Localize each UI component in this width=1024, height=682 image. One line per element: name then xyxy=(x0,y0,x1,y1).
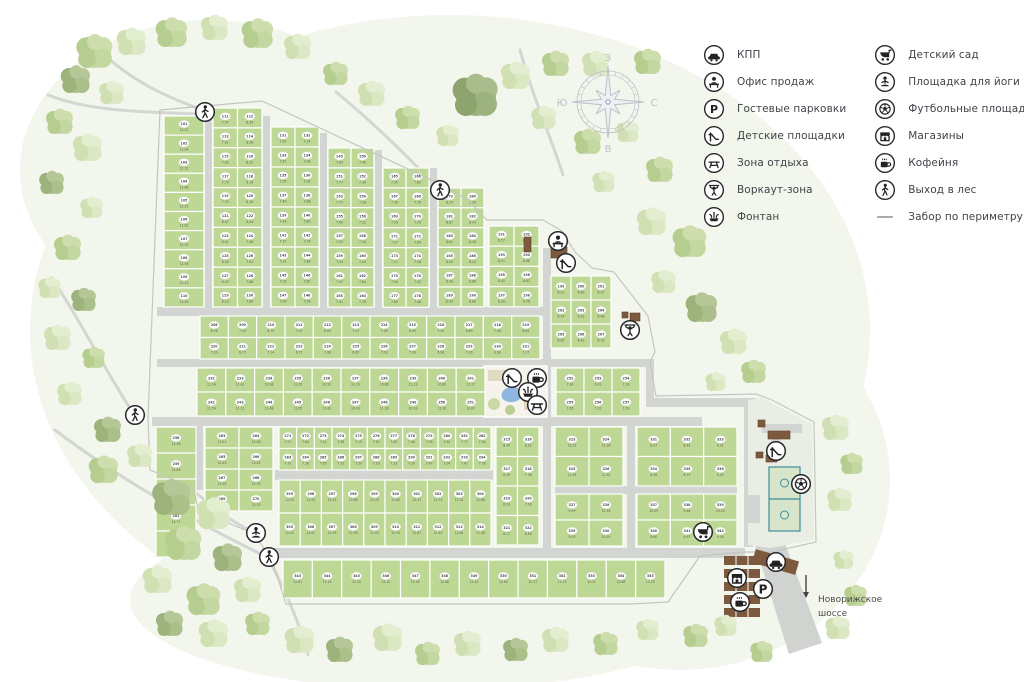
plot[interactable]: 300 12.80 xyxy=(385,480,406,513)
svg-text:7.64: 7.64 xyxy=(414,240,421,244)
plot[interactable]: 320 7.90 xyxy=(518,486,540,516)
plot[interactable]: 140 7.80 xyxy=(295,207,319,227)
plot[interactable]: 112 8.34 xyxy=(238,108,263,128)
plot[interactable]: 332 8.44 xyxy=(670,427,703,457)
plot[interactable]: 222 7.14 xyxy=(257,338,285,360)
svg-text:354: 354 xyxy=(617,574,625,578)
plot[interactable]: 339 10.03 xyxy=(704,494,737,520)
plot[interactable]: 271 7.27 xyxy=(279,427,297,449)
plot[interactable]: 105 12.25 xyxy=(164,192,204,211)
svg-text:7.80: 7.80 xyxy=(304,220,311,224)
svg-text:7.14: 7.14 xyxy=(267,351,274,355)
plot[interactable]: 244 11.48 xyxy=(255,392,284,416)
tree xyxy=(634,49,661,74)
plot[interactable]: 258 14.46 xyxy=(156,427,196,453)
plot[interactable]: 220 7.20 xyxy=(200,338,228,360)
plot[interactable]: 268 13.76 xyxy=(239,469,273,490)
plot[interactable]: 156 7.22 xyxy=(351,208,374,228)
parking-icon: P xyxy=(754,580,773,599)
plot[interactable]: 318 7.96 xyxy=(518,457,540,487)
plot[interactable]: 171 7.27 xyxy=(383,228,406,248)
plot[interactable]: 106 11.82 xyxy=(164,212,204,231)
plot[interactable]: 276 7.52 xyxy=(367,427,385,449)
svg-text:286: 286 xyxy=(337,456,345,460)
plot[interactable]: 235 11.35 xyxy=(283,368,312,392)
plot[interactable]: 215 6.95 xyxy=(398,316,426,338)
svg-text:258: 258 xyxy=(173,436,181,440)
plot[interactable]: 143 7.31 xyxy=(271,247,295,267)
svg-text:282: 282 xyxy=(479,434,486,438)
plot[interactable]: 226 7.02 xyxy=(370,338,398,360)
plot[interactable]: 264 13.08 xyxy=(239,427,273,448)
svg-text:12.31: 12.31 xyxy=(455,498,464,502)
plot[interactable]: 329 9.93 xyxy=(555,520,589,546)
plot[interactable]: 338 9.66 xyxy=(670,494,703,520)
tree xyxy=(156,17,187,47)
plot[interactable]: 331 8.07 xyxy=(637,427,670,457)
plot[interactable]: 349 12.43 xyxy=(459,560,488,598)
plot[interactable]: 138 7.86 xyxy=(295,187,319,207)
plot[interactable]: 280 7.40 xyxy=(438,427,456,449)
plot[interactable]: 136 7.92 xyxy=(295,167,319,187)
plot[interactable]: 208 6.76 xyxy=(200,316,228,338)
plot[interactable]: 213 7.01 xyxy=(342,316,370,338)
svg-text:231: 231 xyxy=(522,345,530,349)
plot[interactable]: 247 10.99 xyxy=(341,392,370,416)
plot[interactable]: 104 11.88 xyxy=(164,173,204,192)
svg-text:7.28: 7.28 xyxy=(623,382,630,386)
plot[interactable]: 203 6.91 xyxy=(571,300,591,324)
plot[interactable]: 327 9.99 xyxy=(555,494,589,520)
plot[interactable]: 145 7.25 xyxy=(271,267,295,287)
plot[interactable]: 317 8.39 xyxy=(496,457,518,487)
svg-text:8.38: 8.38 xyxy=(650,473,657,477)
plot[interactable]: 210 6.70 xyxy=(257,316,285,338)
svg-text:7.77: 7.77 xyxy=(336,180,343,184)
plot[interactable]: 163 7.41 xyxy=(328,287,351,307)
plot[interactable]: 239 11.23 xyxy=(399,368,428,392)
plot[interactable]: 229 7.33 xyxy=(455,338,483,360)
plot[interactable]: 319 8.33 xyxy=(496,486,518,516)
plot[interactable]: 251 10.87 xyxy=(456,392,485,416)
plot[interactable]: 216 7.32 xyxy=(427,316,455,338)
plot[interactable]: 114 8.28 xyxy=(238,128,263,148)
plot[interactable]: 197 8.39 xyxy=(489,287,514,307)
svg-text:7.61: 7.61 xyxy=(280,160,287,164)
plot[interactable]: 120 8.10 xyxy=(238,188,263,208)
plot[interactable]: 286 7.22 xyxy=(332,449,350,471)
plot[interactable]: 183 8.61 xyxy=(438,228,461,248)
plot[interactable]: 313 12.81 xyxy=(449,513,470,546)
plot[interactable]: 153 7.71 xyxy=(328,188,351,208)
slide-icon xyxy=(503,369,522,388)
plot[interactable]: 274 7.58 xyxy=(332,427,350,449)
plot[interactable]: 206 6.42 xyxy=(571,324,591,348)
plot[interactable]: 325 11.95 xyxy=(555,457,589,487)
svg-text:7.53: 7.53 xyxy=(390,462,397,466)
svg-text:343: 343 xyxy=(294,574,302,578)
plot[interactable]: 340 9.60 xyxy=(637,520,670,546)
plot[interactable]: 234 10.98 xyxy=(255,368,284,392)
plot[interactable]: 170 7.70 xyxy=(406,208,429,228)
walk-icon xyxy=(874,179,896,201)
plot[interactable]: 295 12.55 xyxy=(279,480,300,513)
plot[interactable]: 181 8.67 xyxy=(438,208,461,228)
plot[interactable]: 230 6.90 xyxy=(483,338,511,360)
plot[interactable]: 350 12.80 xyxy=(489,560,518,598)
plot[interactable]: 164 7.78 xyxy=(351,287,374,307)
plot[interactable]: 306 12.62 xyxy=(300,513,321,546)
plot[interactable]: 284 7.28 xyxy=(297,449,315,471)
plot[interactable]: 311 12.87 xyxy=(406,513,427,546)
svg-text:12.86: 12.86 xyxy=(349,498,358,502)
svg-text:164: 164 xyxy=(359,294,367,298)
plot[interactable]: 335 8.75 xyxy=(670,457,703,487)
plot[interactable]: 321 8.27 xyxy=(496,516,518,546)
plot[interactable]: 173 7.21 xyxy=(383,248,406,268)
plot[interactable]: 201 6.97 xyxy=(591,276,611,300)
svg-text:7.26: 7.26 xyxy=(494,329,501,333)
plot[interactable]: 158 7.16 xyxy=(351,228,374,248)
plot[interactable]: 343 12.61 xyxy=(283,560,312,598)
plot[interactable]: 355 12.25 xyxy=(636,560,665,598)
plot[interactable]: 299 12.43 xyxy=(364,480,385,513)
plot[interactable]: 270 13.70 xyxy=(239,490,273,511)
plot[interactable]: 149 7.83 xyxy=(328,148,351,168)
plot[interactable]: 168 7.76 xyxy=(406,188,429,208)
plot[interactable]: 167 7.39 xyxy=(383,188,406,208)
plot[interactable]: 129 8.23 xyxy=(213,287,238,307)
plot[interactable]: 119 7.73 xyxy=(213,188,238,208)
plot[interactable]: 128 7.86 xyxy=(238,267,263,287)
plot[interactable]: 354 12.68 xyxy=(606,560,635,598)
plot[interactable]: 107 12.19 xyxy=(164,231,204,250)
plot[interactable]: 110 12.50 xyxy=(164,288,204,307)
plot[interactable]: 193 8.51 xyxy=(489,246,514,266)
plot[interactable]: 336 8.32 xyxy=(704,457,737,487)
plot[interactable]: 297 12.49 xyxy=(321,480,342,513)
plot[interactable]: 176 7.52 xyxy=(406,268,429,288)
plot[interactable]: 155 7.65 xyxy=(328,208,351,228)
svg-text:10.98: 10.98 xyxy=(265,382,274,386)
svg-text:12.25: 12.25 xyxy=(180,205,189,209)
plot[interactable]: 212 6.64 xyxy=(313,316,341,338)
plot[interactable]: 236 10.92 xyxy=(312,368,341,392)
plot[interactable]: 305 12.25 xyxy=(279,513,300,546)
tree xyxy=(750,641,773,662)
plot[interactable]: 344 12.18 xyxy=(312,560,341,598)
svg-text:12.62: 12.62 xyxy=(306,531,315,535)
plot[interactable]: 200 6.60 xyxy=(571,276,591,300)
svg-text:108: 108 xyxy=(181,256,189,260)
plot[interactable]: 196 8.82 xyxy=(514,266,539,286)
plot[interactable]: 113 7.91 xyxy=(213,128,238,148)
plot[interactable]: 188 8.86 xyxy=(461,267,484,287)
plot[interactable]: 144 7.68 xyxy=(295,247,319,267)
svg-text:107: 107 xyxy=(181,237,189,241)
plot[interactable]: 294 7.78 xyxy=(473,449,491,471)
plot[interactable]: 315 8.45 xyxy=(496,427,518,457)
plot[interactable]: 243 11.11 xyxy=(226,392,255,416)
tree xyxy=(245,612,270,635)
svg-text:8.33: 8.33 xyxy=(503,503,510,507)
plot[interactable]: 219 6.83 xyxy=(512,316,540,338)
legend-label: Детский сад xyxy=(908,49,978,61)
plot[interactable]: 118 8.16 xyxy=(238,168,263,188)
plot[interactable]: 124 7.98 xyxy=(238,227,263,247)
plot[interactable]: 275 7.15 xyxy=(350,427,368,449)
plot[interactable]: 221 6.77 xyxy=(228,338,256,360)
plot[interactable]: 223 6.71 xyxy=(285,338,313,360)
plot[interactable]: 334 8.38 xyxy=(637,457,670,487)
plot[interactable]: 211 7.07 xyxy=(285,316,313,338)
plot[interactable]: 352 12.74 xyxy=(547,560,576,598)
plot[interactable]: 202 6.54 xyxy=(551,300,571,324)
plot[interactable]: 103 12.31 xyxy=(164,154,204,173)
plot[interactable]: 312 12.44 xyxy=(427,513,448,546)
plot[interactable]: 160 7.10 xyxy=(351,248,374,268)
plot[interactable]: 345 12.55 xyxy=(342,560,371,598)
plot[interactable]: 346 12.12 xyxy=(371,560,400,598)
plot[interactable]: 218 7.26 xyxy=(483,316,511,338)
svg-text:190: 190 xyxy=(469,294,477,298)
svg-text:172: 172 xyxy=(414,234,421,238)
plot[interactable]: 288 7.16 xyxy=(367,449,385,471)
plot[interactable]: 228 6.96 xyxy=(427,338,455,360)
plot[interactable]: 184 8.18 xyxy=(461,228,484,248)
plot[interactable]: 348 12.86 xyxy=(430,560,459,598)
tree xyxy=(80,197,102,218)
plot[interactable]: 157 7.59 xyxy=(328,228,351,248)
plot[interactable]: 242 11.54 xyxy=(197,392,226,416)
plot[interactable]: 322 8.64 xyxy=(518,516,540,546)
plot[interactable]: 254 7.28 xyxy=(612,368,640,392)
svg-text:319: 319 xyxy=(503,497,511,501)
plot[interactable]: 285 7.65 xyxy=(314,449,332,471)
plot[interactable]: 337 10.09 xyxy=(637,494,670,520)
plot[interactable]: 198 8.76 xyxy=(514,287,539,307)
svg-text:153: 153 xyxy=(336,194,344,198)
plot[interactable]: 309 12.93 xyxy=(364,513,385,546)
plot[interactable]: 347 12.49 xyxy=(401,560,430,598)
plot[interactable]: 123 8.41 xyxy=(213,227,238,247)
svg-text:318: 318 xyxy=(525,467,533,471)
plot[interactable]: 246 11.42 xyxy=(312,392,341,416)
tree xyxy=(616,121,639,142)
plot[interactable]: 266 13.02 xyxy=(239,448,273,469)
plot[interactable]: 186 8.12 xyxy=(461,247,484,267)
plot[interactable]: 296 12.92 xyxy=(300,480,321,513)
plot[interactable]: 154 7.28 xyxy=(351,188,374,208)
plot[interactable]: 281 7.77 xyxy=(456,427,474,449)
plot[interactable]: 273 7.21 xyxy=(314,427,332,449)
plot[interactable]: 131 7.67 xyxy=(271,127,295,147)
plot[interactable]: 109 12.13 xyxy=(164,269,204,288)
plot[interactable]: 189 8.43 xyxy=(438,287,461,307)
plot[interactable]: 207 6.79 xyxy=(591,324,611,348)
svg-text:12.43: 12.43 xyxy=(370,498,379,502)
plot[interactable]: 175 7.95 xyxy=(383,268,406,288)
plot[interactable]: 279 7.03 xyxy=(420,427,438,449)
plot[interactable]: 199 6.23 xyxy=(551,276,571,300)
plot[interactable]: 255 7.65 xyxy=(556,392,584,416)
plot[interactable]: 166 7.82 xyxy=(406,168,429,188)
svg-text:7.47: 7.47 xyxy=(426,462,433,466)
plot[interactable]: 245 11.05 xyxy=(283,392,312,416)
plot[interactable]: 303 12.31 xyxy=(449,480,470,513)
plot[interactable]: 147 7.99 xyxy=(271,287,295,307)
plot[interactable]: 209 7.13 xyxy=(228,316,256,338)
plot[interactable]: 241 11.17 xyxy=(456,368,485,392)
plot[interactable]: 178 7.46 xyxy=(406,287,429,307)
plot[interactable]: 232 11.04 xyxy=(197,368,226,392)
plot[interactable]: 351 12.37 xyxy=(518,560,547,598)
plot[interactable]: 217 6.89 xyxy=(455,316,483,338)
plot[interactable]: 190 8.80 xyxy=(461,287,484,307)
plot[interactable]: 248 11.36 xyxy=(370,392,399,416)
plot[interactable]: 130 7.80 xyxy=(238,287,263,307)
plot[interactable]: 151 7.77 xyxy=(328,168,351,188)
plot[interactable]: 283 7.71 xyxy=(279,449,297,471)
plot[interactable]: 185 8.55 xyxy=(438,247,461,267)
plot[interactable]: 290 7.10 xyxy=(403,449,421,471)
plot[interactable]: 272 7.64 xyxy=(297,427,315,449)
car-icon xyxy=(767,553,786,572)
tree xyxy=(323,62,348,85)
plot[interactable]: 182 8.24 xyxy=(461,208,484,228)
plot[interactable]: 233 11.41 xyxy=(226,368,255,392)
plot[interactable]: 148 7.56 xyxy=(295,287,319,307)
plot[interactable]: 330 10.30 xyxy=(589,520,623,546)
plot[interactable]: 111 7.97 xyxy=(213,108,238,128)
plot[interactable]: 146 7.62 xyxy=(295,267,319,287)
svg-text:7.59: 7.59 xyxy=(355,462,362,466)
plot[interactable]: 282 7.34 xyxy=(473,427,491,449)
plot[interactable]: 323 12.01 xyxy=(555,427,589,457)
plot[interactable]: 214 7.38 xyxy=(370,316,398,338)
svg-text:12.31: 12.31 xyxy=(587,580,596,584)
plot[interactable]: 328 10.36 xyxy=(589,494,623,520)
plot[interactable]: 134 7.98 xyxy=(295,147,319,167)
plot[interactable]: 122 8.04 xyxy=(238,208,263,228)
plot[interactable]: 165 7.45 xyxy=(383,168,406,188)
plot[interactable]: 102 11.94 xyxy=(164,135,204,154)
plot[interactable]: 162 7.84 xyxy=(351,267,374,287)
tree xyxy=(44,325,71,350)
plot[interactable]: 307 12.99 xyxy=(321,513,342,546)
plot[interactable]: 195 8.45 xyxy=(489,266,514,286)
plot[interactable]: 177 7.89 xyxy=(383,287,406,307)
plot[interactable]: 250 11.30 xyxy=(427,392,456,416)
svg-text:250: 250 xyxy=(438,400,446,404)
plot[interactable]: 333 8.01 xyxy=(704,427,737,457)
plot[interactable]: 169 7.33 xyxy=(383,208,406,228)
plot[interactable]: 159 7.53 xyxy=(328,248,351,268)
plot[interactable]: 253 6.91 xyxy=(584,368,612,392)
plot[interactable]: 133 7.61 xyxy=(271,147,295,167)
svg-text:279: 279 xyxy=(426,434,434,438)
plot[interactable]: 205 6.85 xyxy=(551,324,571,348)
plot[interactable]: 225 6.65 xyxy=(342,338,370,360)
plot[interactable]: 316 8.02 xyxy=(518,427,540,457)
plot[interactable]: 137 7.49 xyxy=(271,187,295,207)
plot[interactable]: 116 8.22 xyxy=(238,148,263,168)
plot[interactable]: 127 8.29 xyxy=(213,267,238,287)
plot[interactable]: 324 12.38 xyxy=(589,427,623,457)
plot[interactable]: 302 12.74 xyxy=(427,480,448,513)
plot[interactable]: 237 11.29 xyxy=(341,368,370,392)
plot[interactable]: 289 7.53 xyxy=(385,449,403,471)
plot[interactable]: 240 10.80 xyxy=(427,368,456,392)
plot[interactable]: 267 13.39 xyxy=(205,469,239,490)
plot[interactable]: 353 12.31 xyxy=(577,560,606,598)
svg-text:287: 287 xyxy=(355,456,363,460)
plot[interactable]: 256 7.22 xyxy=(584,392,612,416)
svg-text:8.23: 8.23 xyxy=(222,300,229,304)
svg-text:337: 337 xyxy=(650,503,658,507)
svg-text:8.45: 8.45 xyxy=(498,279,505,283)
plot[interactable]: 108 12.56 xyxy=(164,250,204,269)
plot[interactable]: 238 10.86 xyxy=(370,368,399,392)
plot[interactable]: 308 12.56 xyxy=(343,513,364,546)
plot[interactable]: 187 8.49 xyxy=(438,267,461,287)
plot[interactable]: 132 7.24 xyxy=(295,127,319,147)
plot[interactable]: 265 13.45 xyxy=(205,448,239,469)
plot[interactable]: 298 12.86 xyxy=(343,480,364,513)
plot[interactable]: 174 7.58 xyxy=(406,248,429,268)
plot[interactable]: 314 12.38 xyxy=(470,513,491,546)
plot[interactable]: 191 8.57 xyxy=(489,226,514,246)
plot[interactable]: 252 7.34 xyxy=(556,368,584,392)
plot[interactable]: 172 7.64 xyxy=(406,228,429,248)
plot[interactable]: 293 7.41 xyxy=(456,449,474,471)
plot[interactable]: 204 6.48 xyxy=(591,300,611,324)
tree xyxy=(686,292,718,322)
plot[interactable]: 304 12.68 xyxy=(470,480,491,513)
plot[interactable]: 292 7.04 xyxy=(438,449,456,471)
plot[interactable]: 142 7.74 xyxy=(295,227,319,247)
plot[interactable]: 310 12.50 xyxy=(385,513,406,546)
tree xyxy=(531,106,556,129)
plot[interactable]: 257 7.59 xyxy=(612,392,640,416)
plot[interactable]: 278 7.46 xyxy=(403,427,421,449)
plot[interactable]: 291 7.47 xyxy=(420,449,438,471)
plot[interactable]: 227 7.39 xyxy=(398,338,426,360)
plot[interactable]: 121 8.47 xyxy=(213,208,238,228)
plot[interactable]: 326 12.32 xyxy=(589,457,623,487)
plot[interactable]: 135 7.55 xyxy=(271,167,295,187)
plot[interactable]: 139 7.43 xyxy=(271,207,295,227)
svg-text:7.37: 7.37 xyxy=(280,240,287,244)
plot[interactable]: 301 12.37 xyxy=(406,480,427,513)
plot[interactable]: 125 8.35 xyxy=(213,247,238,267)
plot[interactable]: 115 7.85 xyxy=(213,148,238,168)
plot[interactable]: 231 7.27 xyxy=(512,338,540,360)
plot[interactable]: 263 13.51 xyxy=(205,427,239,448)
plot[interactable]: 126 7.92 xyxy=(238,247,263,267)
svg-text:12.18: 12.18 xyxy=(323,580,332,584)
plot[interactable]: 224 7.08 xyxy=(313,338,341,360)
svg-text:8.73: 8.73 xyxy=(446,201,453,205)
plot[interactable]: 141 7.37 xyxy=(271,227,295,247)
plot[interactable]: 249 10.93 xyxy=(399,392,428,416)
plot[interactable]: 152 7.34 xyxy=(351,168,374,188)
road xyxy=(627,417,635,548)
plot[interactable]: 117 7.79 xyxy=(213,168,238,188)
plot[interactable]: 161 7.47 xyxy=(328,267,351,287)
plot[interactable]: 277 7.09 xyxy=(385,427,403,449)
plot[interactable]: 287 7.59 xyxy=(350,449,368,471)
